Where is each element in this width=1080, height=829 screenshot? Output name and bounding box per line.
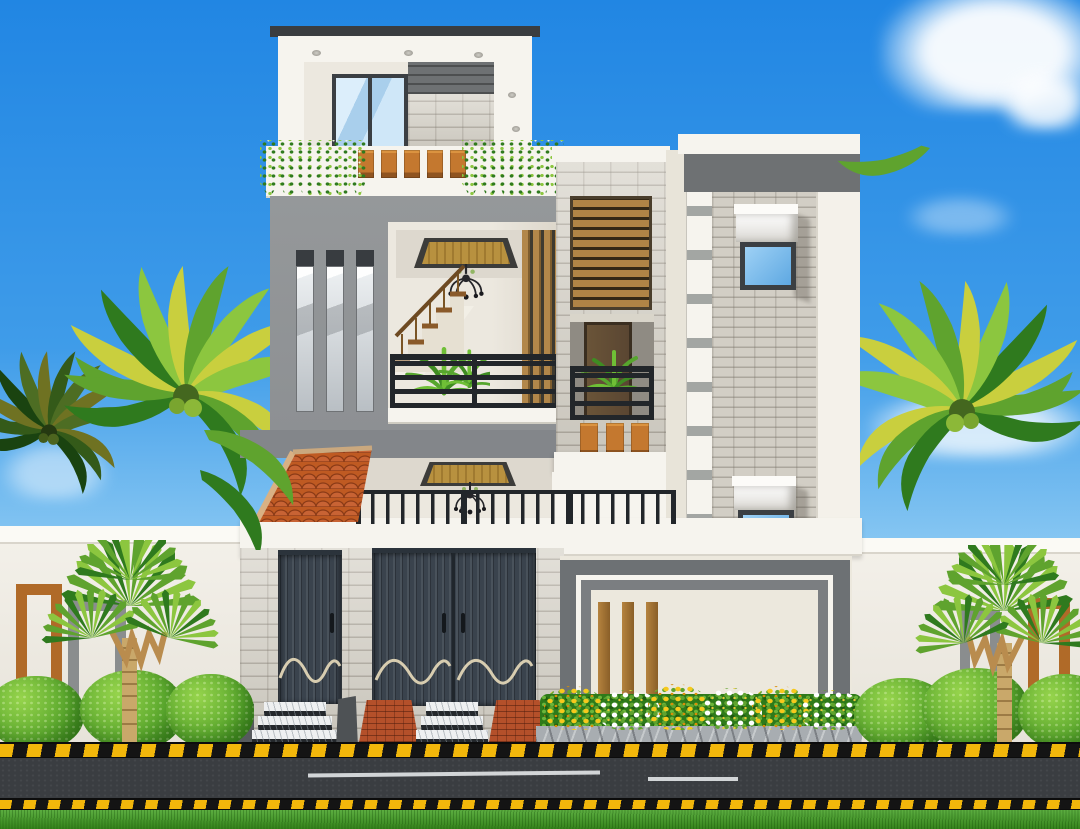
garage-gate-main (372, 548, 536, 706)
wood-slat-screen (570, 196, 652, 310)
road (0, 758, 1080, 798)
window-awning (736, 214, 798, 242)
hazard-curb-upper (0, 742, 1080, 758)
entry-step (421, 716, 483, 730)
scene-architectural-render (0, 0, 1080, 829)
road-marking (648, 777, 738, 781)
gate-seam (452, 553, 455, 706)
slit-window (296, 266, 314, 412)
gate-handle (461, 613, 465, 633)
gate-wave-trim (374, 636, 452, 688)
rooftop-dark-stone-band (408, 62, 494, 94)
soffit-light (404, 50, 413, 56)
gate-wave-trim (456, 636, 534, 688)
picket-post (568, 490, 573, 524)
picket-railing (356, 494, 676, 524)
pilaster-strip (686, 192, 714, 558)
soffit-light (512, 126, 520, 132)
window-awning-top (734, 204, 798, 214)
glass-door-mullion (368, 78, 372, 150)
balcony-railing-post (472, 354, 477, 408)
palm-frond-overlap-right (826, 128, 936, 238)
tower-ledge (554, 452, 666, 472)
picket-post (462, 490, 467, 524)
step-side-stone (336, 696, 358, 748)
awning-window-upper (740, 242, 796, 290)
hazard-strip-lower (0, 798, 1080, 810)
gate-handle (330, 613, 334, 633)
porch-wood-panel (427, 465, 509, 483)
grass-verge (0, 810, 1080, 829)
fan-palm-left (36, 540, 226, 750)
slit-window-cap (296, 250, 314, 266)
window-awning (734, 486, 796, 510)
gate-wave-trim (278, 634, 342, 686)
entry-step (258, 716, 332, 730)
balcony-sill (388, 408, 560, 424)
tower-balcony-railing (570, 366, 654, 420)
cloud (1000, 70, 1080, 130)
tower-railing-post (649, 366, 654, 420)
brick-ramp (358, 700, 420, 748)
balcony-railing-post (390, 354, 395, 408)
soffit-light (508, 92, 516, 98)
flower-cluster-yellow (544, 686, 606, 730)
terrace-planter-box (404, 150, 420, 178)
soffit-light (474, 52, 483, 58)
slit-window (356, 266, 374, 412)
entry-step (264, 702, 326, 716)
garage-gate-left (278, 550, 342, 704)
entry-step (426, 702, 478, 716)
slit-window (326, 266, 344, 412)
slit-window-cap (356, 250, 374, 266)
terrace-planter-box (427, 150, 443, 178)
right-tower-white-column (816, 192, 860, 548)
tower-railing-post (570, 366, 575, 420)
soffit-light (312, 50, 321, 56)
gate-handle (442, 613, 446, 633)
picket-post (671, 490, 676, 524)
fan-palm-right (908, 545, 1080, 755)
window-awning-top (732, 476, 796, 486)
slit-window-cap (326, 250, 344, 266)
terrace-planter-box (381, 150, 397, 178)
flower-cluster-white (800, 690, 862, 730)
middle-tower-cap (552, 146, 670, 162)
palm-frond-overlap-left (198, 400, 328, 550)
